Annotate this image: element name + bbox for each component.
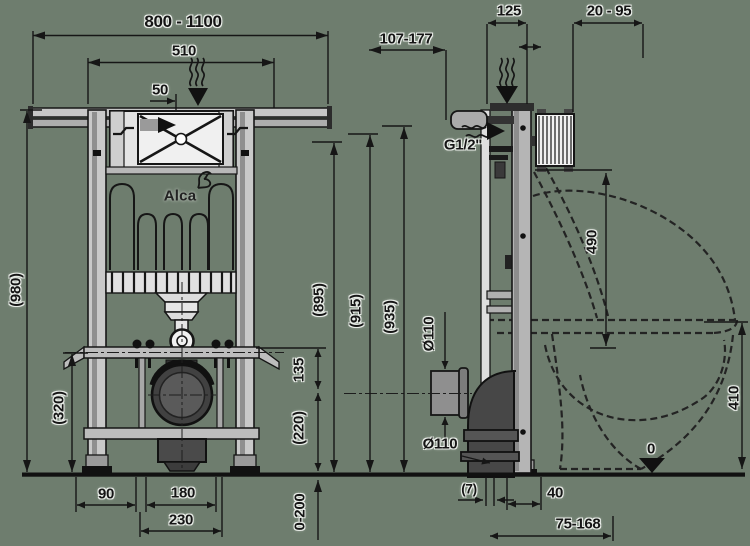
- flush-down-arrow-side-icon: [496, 86, 518, 104]
- dim-seat-height: 410: [726, 386, 743, 410]
- dim-ref-height-895: (895): [311, 283, 328, 317]
- alca-logo: Alca: [164, 188, 197, 205]
- side-view-drawing: [431, 58, 737, 477]
- fill-valve: [451, 111, 487, 129]
- flush-water-waves-side: [500, 58, 514, 86]
- dim-width-range: 800 - 1100: [144, 12, 221, 32]
- dim-ref-height-935: (935): [382, 300, 399, 334]
- installation-frame-drawing: [0, 0, 750, 546]
- dim-drain-diameter-top: Ø110: [421, 317, 438, 352]
- technical-drawing-canvas: 800 - 1100 510 50 (980) (320) 90 180 230…: [0, 0, 750, 546]
- dim-drain-outer-width: 230: [169, 512, 193, 529]
- floor-line: [22, 473, 745, 477]
- dim-ref-height-915: (915): [348, 294, 365, 328]
- dim-drain-height: (220): [291, 411, 308, 445]
- dim-outlet-range: 75-168: [556, 516, 601, 533]
- dim-leg-adjust-range: 0-200: [292, 494, 309, 531]
- dim-inner-width: 510: [172, 43, 196, 60]
- centerlines: [65, 282, 472, 468]
- dim-lower-height: (320): [51, 391, 68, 425]
- dim-foot-offset: 90: [98, 486, 114, 503]
- dim-drain-width: 180: [171, 485, 195, 502]
- label-water-connection: G1/2": [444, 137, 482, 154]
- floor-level-marker-icon: [639, 458, 665, 473]
- dim-front-offset: (7): [461, 482, 477, 497]
- dim-drain-diameter-bottom: Ø110: [423, 436, 458, 453]
- dim-outlet-offset: 40: [547, 485, 563, 502]
- dim-bracket-range: 20 - 95: [587, 3, 632, 20]
- dim-wall-distance-range: 107-177: [380, 31, 433, 48]
- wall-bracket: [531, 109, 574, 172]
- dim-mid-spacing: 135: [291, 358, 308, 382]
- side-dimension-lines: [369, 23, 748, 541]
- dim-floor-level: 0: [647, 441, 655, 458]
- water-inlet-arrow-icon: [487, 122, 505, 140]
- dim-frame-depth: 125: [497, 3, 521, 20]
- dim-top-offset: 50: [152, 82, 168, 99]
- dim-inlet-height: 490: [584, 230, 601, 254]
- dim-total-height: (980): [8, 273, 25, 307]
- front-view-drawing: [28, 58, 332, 473]
- flush-down-arrow-icon: [188, 88, 208, 106]
